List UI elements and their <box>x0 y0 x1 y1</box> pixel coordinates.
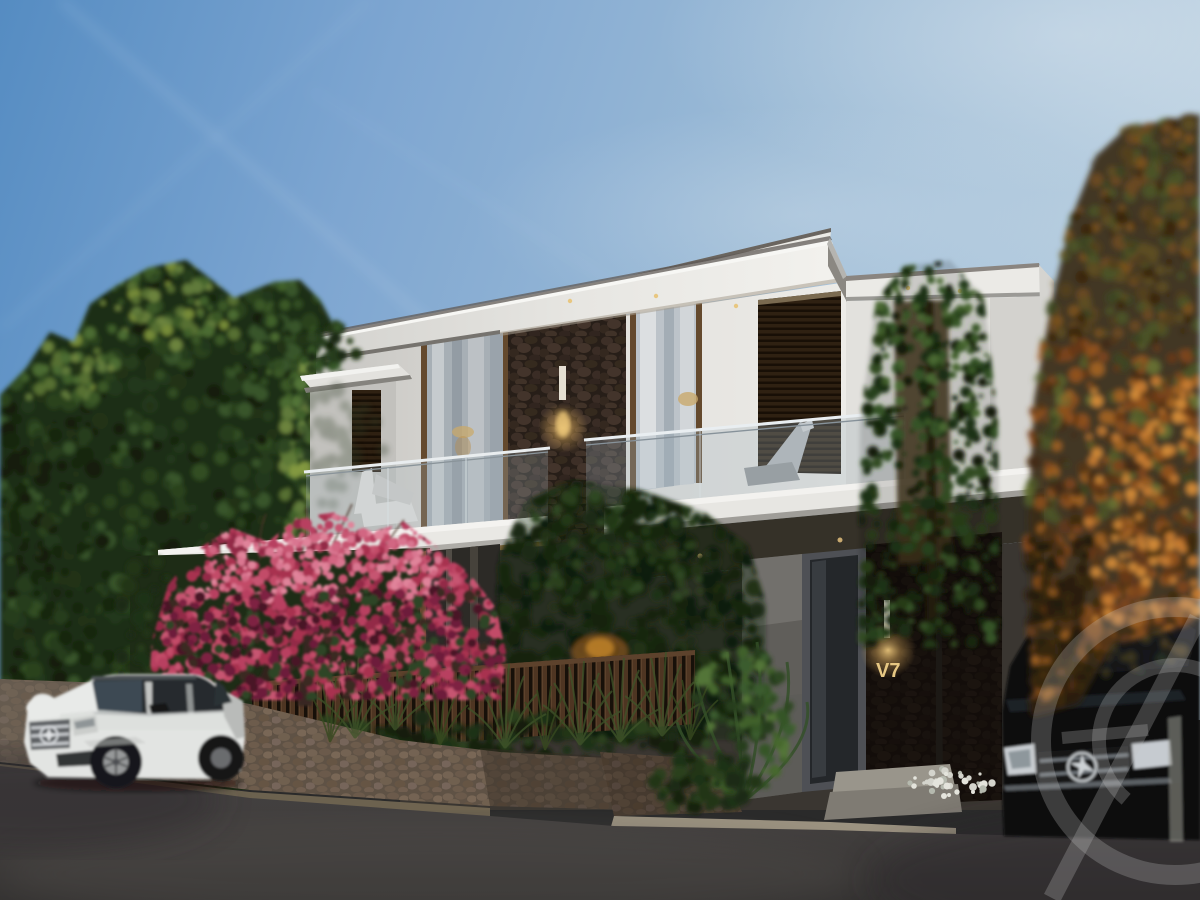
svg-text:V7: V7 <box>876 660 900 682</box>
